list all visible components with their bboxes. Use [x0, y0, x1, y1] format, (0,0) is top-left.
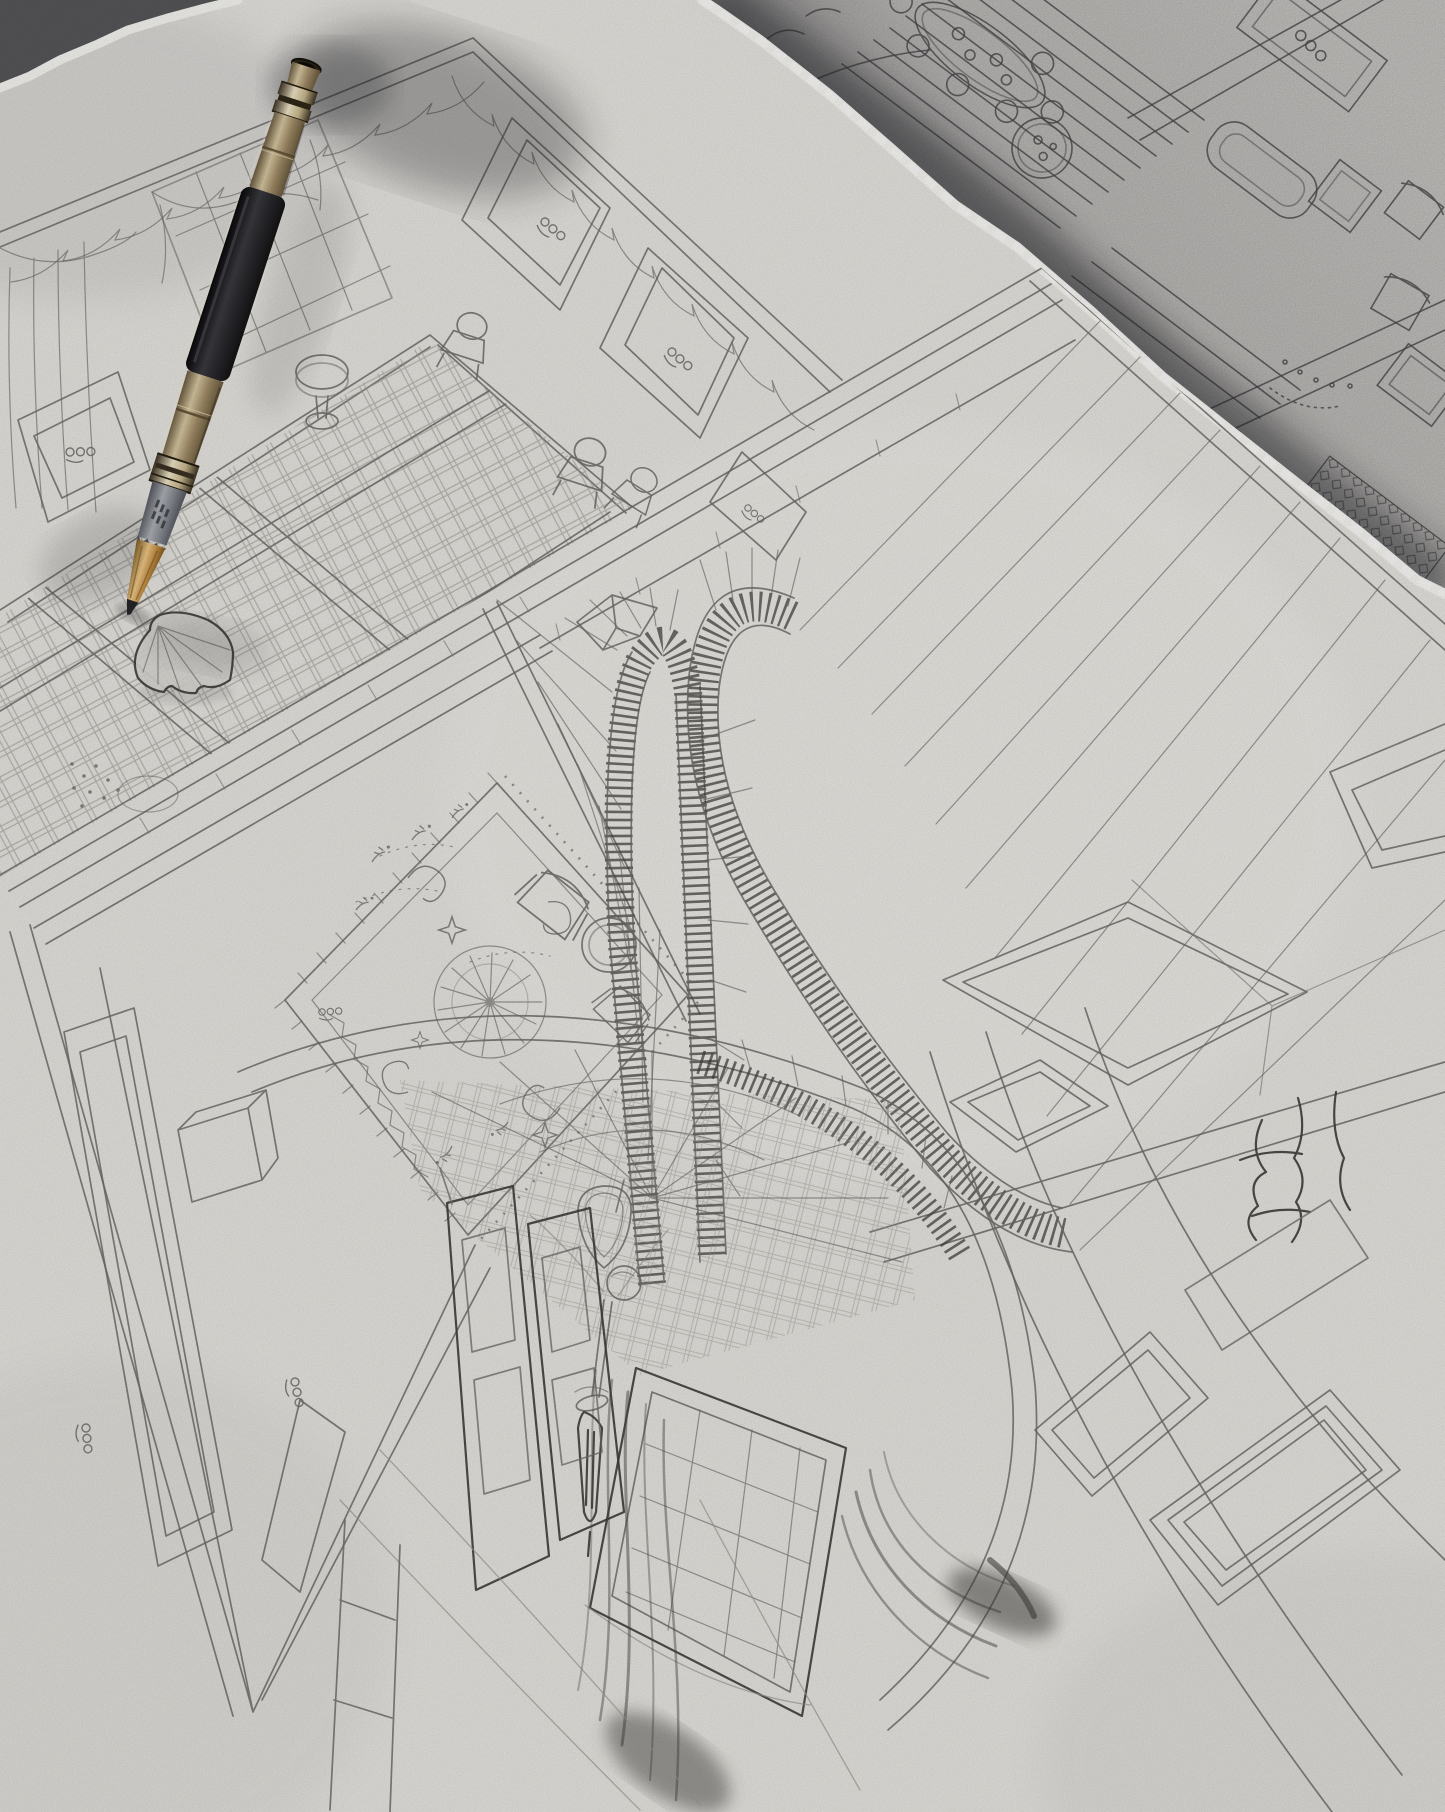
photo-grain — [0, 0, 1445, 1812]
photo-scene — [0, 0, 1445, 1812]
photo-canvas — [0, 0, 1445, 1812]
